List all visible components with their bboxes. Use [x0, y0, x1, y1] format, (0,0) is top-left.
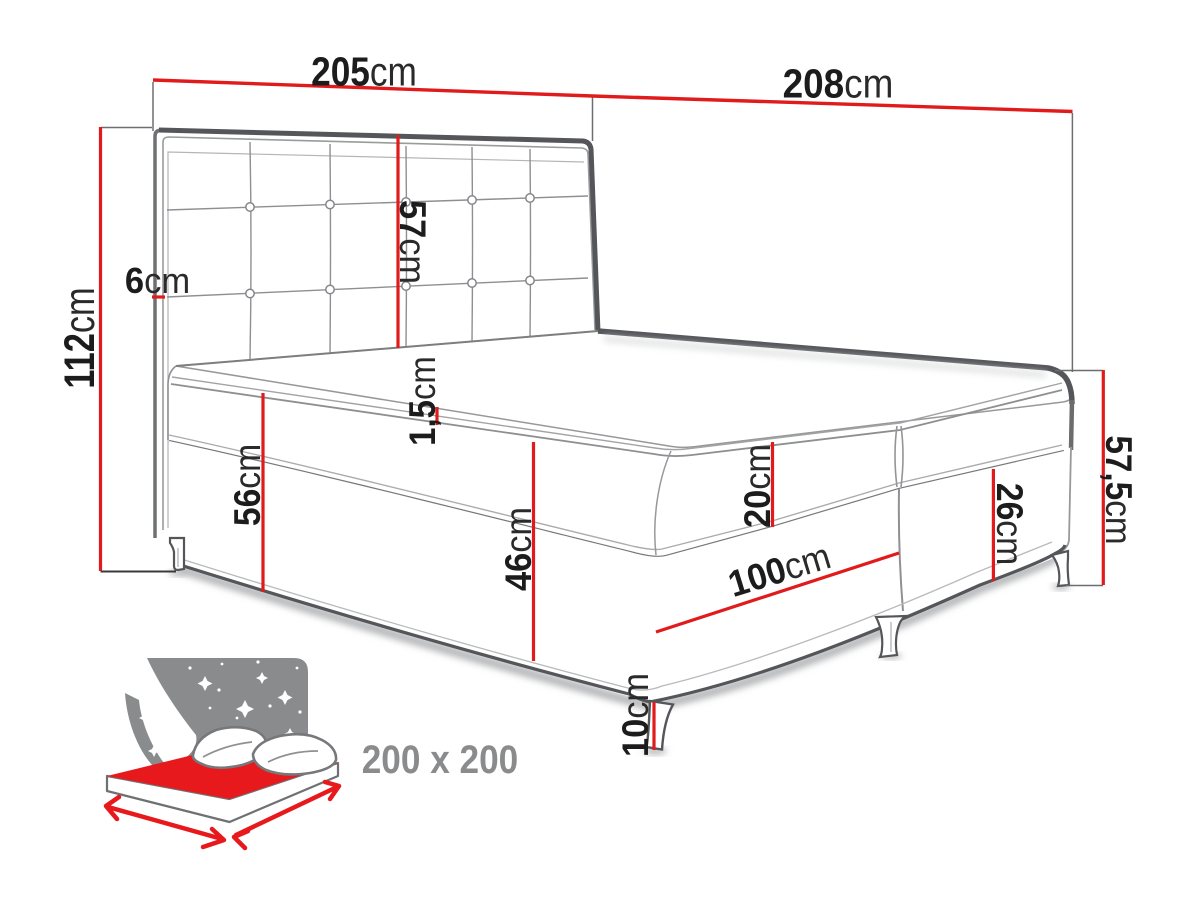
- svg-text:57cm: 57cm: [392, 200, 433, 284]
- svg-text:112cm: 112cm: [56, 287, 103, 388]
- svg-text:208cm: 208cm: [783, 62, 894, 107]
- svg-text:200 x 200: 200 x 200: [362, 737, 519, 782]
- svg-text:1,5cm: 1,5cm: [402, 356, 443, 446]
- svg-text:10cm: 10cm: [615, 673, 656, 757]
- svg-text:46cm: 46cm: [498, 507, 539, 591]
- svg-text:205cm: 205cm: [311, 49, 417, 95]
- svg-text:6cm: 6cm: [125, 261, 190, 301]
- svg-text:56cm: 56cm: [228, 444, 269, 526]
- svg-text:26cm: 26cm: [989, 483, 1030, 565]
- svg-text:57,5cm: 57,5cm: [1098, 435, 1139, 544]
- svg-text:20cm: 20cm: [737, 444, 778, 528]
